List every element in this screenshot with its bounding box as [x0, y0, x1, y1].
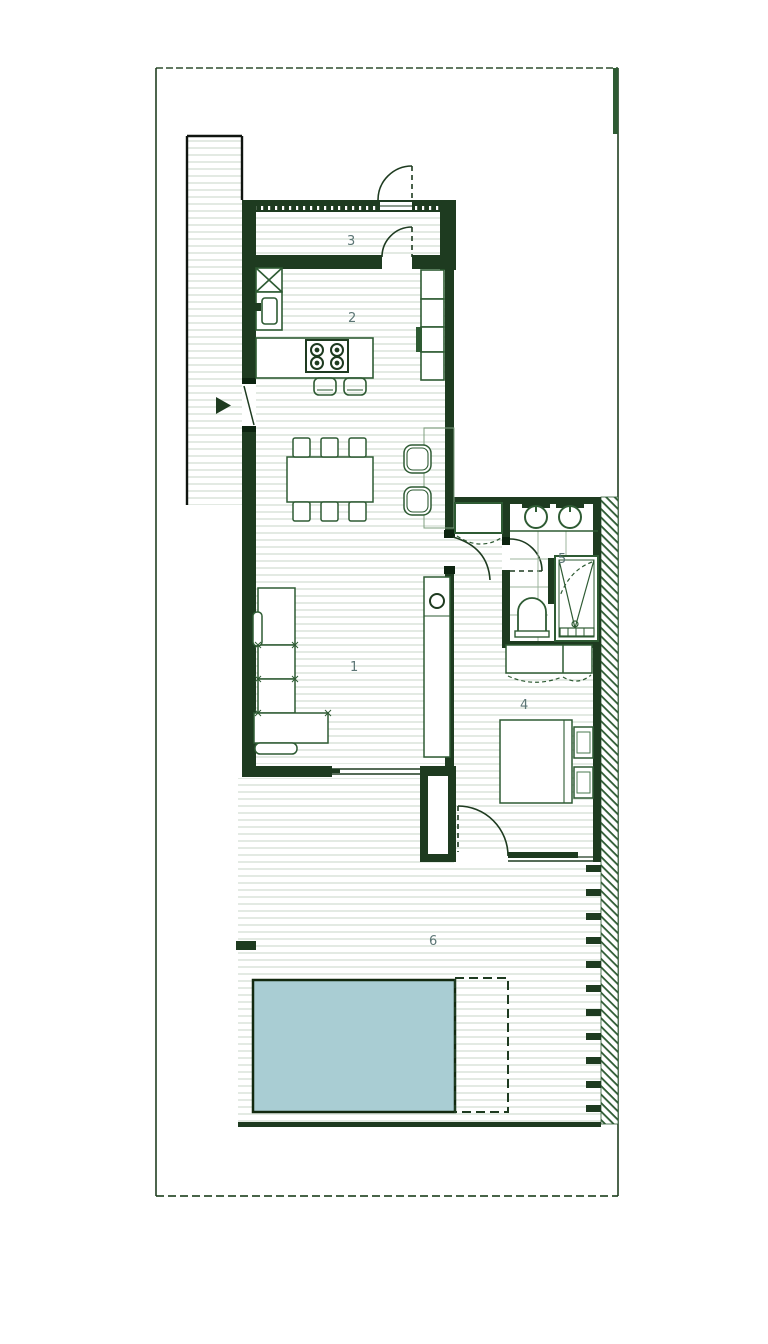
wall-bath-west-lower — [502, 570, 510, 645]
basin-circle — [430, 594, 444, 608]
sofa-seat — [258, 679, 295, 713]
kitchen-tall-cabinet — [421, 327, 444, 352]
gate-door-arc — [378, 166, 412, 200]
wardrobe — [506, 645, 592, 673]
wall-bath-west-upper — [502, 503, 510, 537]
kitchen-tall-cabinet — [421, 352, 444, 380]
dining-chair — [321, 438, 338, 457]
kitchen-faucet — [252, 303, 261, 311]
terrace-step — [236, 941, 256, 950]
room-label-terrace: 6 — [429, 934, 437, 949]
room-label-bathroom: 5 — [558, 552, 566, 567]
closet — [455, 503, 502, 533]
armchair — [404, 487, 431, 515]
sofa-armrest — [255, 743, 297, 754]
dining-chair — [349, 502, 366, 521]
dining-chair — [293, 438, 310, 457]
driveway — [187, 136, 242, 505]
armchair — [404, 445, 431, 473]
terrace-edge-south — [238, 1122, 601, 1127]
dining-chair — [349, 438, 366, 457]
entrance-door-leaf — [244, 386, 254, 425]
wall-shower-partition — [548, 558, 555, 604]
dining-chair — [293, 502, 310, 521]
kitchen-tall-cabinet — [421, 270, 444, 299]
room-label-kitchen: 2 — [348, 311, 356, 326]
hatch-area — [601, 497, 618, 1124]
toilet-base — [515, 631, 549, 637]
room-label-bedroom: 4 — [520, 698, 528, 713]
sofa-armrest — [253, 612, 262, 646]
wall-east-upper — [445, 200, 454, 537]
shower-tray — [560, 628, 594, 636]
dining-chair — [321, 502, 338, 521]
dining-table — [287, 457, 373, 502]
wall-south-living — [242, 766, 332, 777]
sofa-corner — [254, 713, 328, 743]
floor-plan-drawing: 1 2 3 4 5 6 — [0, 0, 768, 1344]
wall-hall-kitchen-left — [242, 255, 382, 269]
room-label-hall: 3 — [347, 234, 355, 249]
kitchen-tall-cabinet — [421, 299, 444, 327]
floor-plan-page: 1 2 3 4 5 6 — [0, 0, 768, 1344]
wall-west-upper — [242, 200, 256, 383]
sofa-chaise — [258, 588, 295, 645]
cabinet-accent — [416, 327, 422, 352]
toilet — [518, 598, 546, 631]
boundary-wall-segment — [613, 68, 618, 134]
terrace-floor-right — [454, 866, 601, 1124]
kitchen-sink-bowl — [262, 298, 277, 324]
room-label-living: 1 — [350, 660, 358, 675]
bed — [500, 720, 572, 803]
sofa-seat — [258, 645, 295, 679]
driveway-paving — [187, 136, 242, 505]
pool — [253, 980, 455, 1112]
wall-east-bedroom — [593, 497, 601, 862]
